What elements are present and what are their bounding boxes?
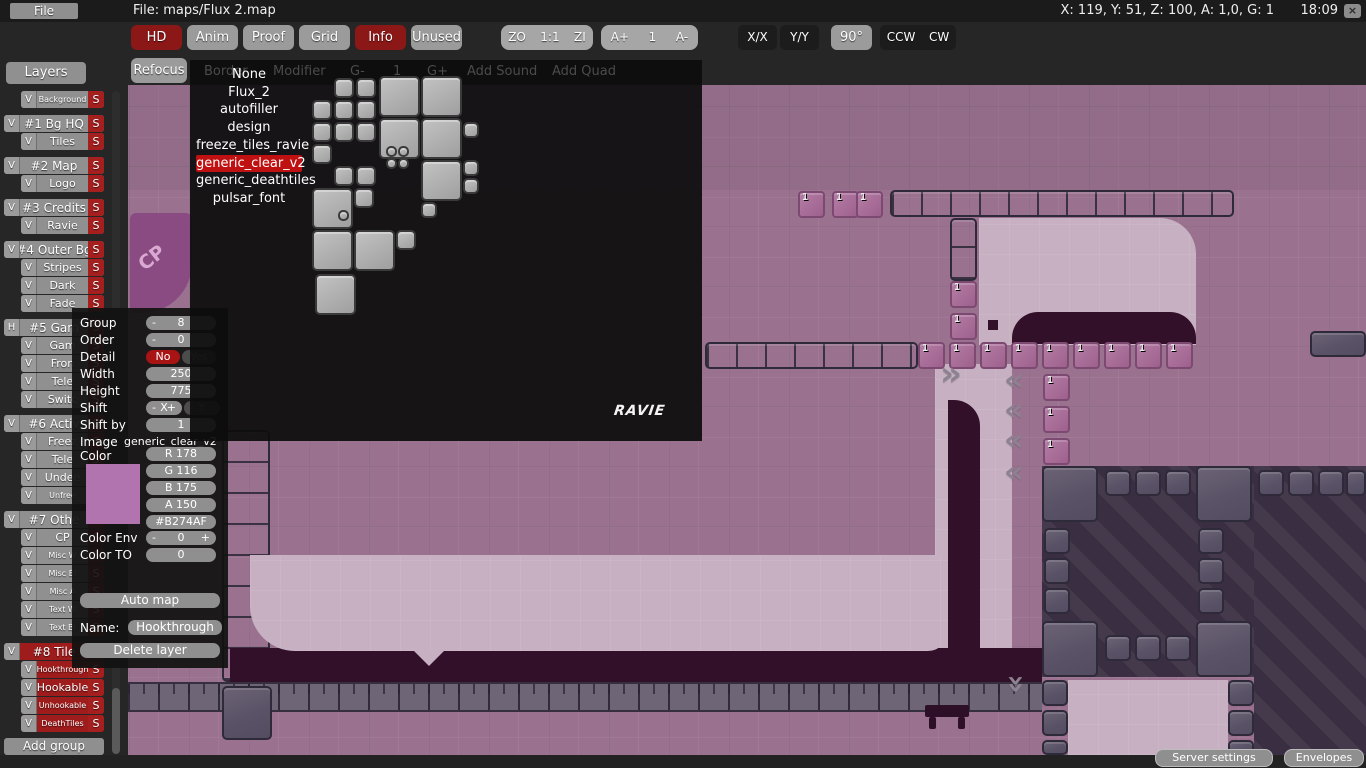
preview-tile bbox=[421, 202, 437, 218]
group-label: Group bbox=[80, 315, 117, 331]
order-label: Order bbox=[80, 332, 114, 348]
tile-number: 1 bbox=[1108, 343, 1114, 354]
tile-number-badge: 1 bbox=[856, 191, 883, 218]
layers-scrollbar-handle[interactable] bbox=[112, 688, 120, 754]
visibility-toggle-icon[interactable]: V bbox=[21, 217, 37, 234]
map-shape bbox=[1165, 635, 1191, 661]
image-item-pulsar_font[interactable]: pulsar_font bbox=[196, 190, 302, 207]
add-group-button[interactable]: Add group bbox=[4, 738, 104, 755]
detail-no-button[interactable]: No bbox=[146, 350, 180, 364]
map-shape bbox=[925, 705, 969, 717]
map-shape bbox=[890, 190, 1234, 217]
visibility-toggle-icon[interactable]: V bbox=[21, 565, 37, 582]
solo-button[interactable]: S bbox=[88, 241, 104, 258]
ravie-watermark: RAVIE bbox=[613, 403, 667, 419]
image-item-none[interactable]: None bbox=[196, 66, 302, 83]
color-env-stepper[interactable]: - 0 + bbox=[146, 531, 216, 545]
server-settings-button[interactable]: Server settings bbox=[1155, 749, 1273, 767]
map-shape bbox=[1254, 466, 1366, 759]
map-shape bbox=[958, 717, 965, 729]
cp-label: CP bbox=[134, 241, 170, 275]
image-item-generic_clear_v2[interactable]: generic_clear_v2 bbox=[196, 155, 302, 172]
layers-panel-header[interactable]: Layers bbox=[6, 62, 86, 84]
minus-icon[interactable]: - bbox=[152, 316, 156, 330]
preview-tile bbox=[386, 158, 397, 169]
visibility-toggle-icon[interactable]: V bbox=[4, 115, 20, 132]
tile-number-badge: 1 bbox=[1042, 342, 1069, 369]
map-shape bbox=[1012, 312, 1196, 344]
map-shape bbox=[1042, 740, 1068, 755]
obscured-add-sound-button: Add Sound bbox=[467, 64, 537, 79]
map-editor-root: CP 11111111111111111 »««««» Server setti… bbox=[0, 0, 1366, 768]
color-label: Color bbox=[80, 448, 111, 464]
rotate-90-button[interactable]: 90° bbox=[831, 25, 872, 50]
preview-tile bbox=[421, 118, 462, 159]
visibility-toggle-icon[interactable]: V bbox=[21, 259, 37, 276]
map-shape bbox=[250, 555, 948, 651]
layer-label: Background bbox=[37, 91, 88, 108]
delete-layer-button[interactable]: Delete layer bbox=[80, 643, 220, 658]
map-shape bbox=[950, 218, 977, 281]
toolbar-row-1: HDAnimProofGridInfoUnused ZO1:1ZI A+1A- … bbox=[131, 24, 956, 50]
image-item-freeze_tiles_ravie[interactable]: freeze_tiles_ravie bbox=[196, 137, 302, 154]
layer-label: #3 Credits bbox=[20, 199, 88, 216]
flip-yy-button[interactable]: Y/Y bbox=[780, 25, 819, 50]
coordinate-status: X: 119, Y: 51, Z: 100, A: 1,0, G: 1 bbox=[1061, 0, 1275, 22]
flip-xx-button[interactable]: X/X bbox=[738, 25, 777, 50]
tile-number-badge: 1 bbox=[1043, 374, 1070, 401]
toolbar-unused-button[interactable]: Unused bbox=[411, 25, 462, 50]
visibility-toggle-icon[interactable]: V bbox=[21, 277, 37, 294]
preview-tile bbox=[398, 146, 409, 157]
tile-number: 1 bbox=[1077, 343, 1083, 354]
map-shape bbox=[1165, 470, 1191, 496]
toolbar-grid-button[interactable]: Grid bbox=[299, 25, 350, 50]
visibility-toggle-icon[interactable]: V bbox=[21, 583, 37, 600]
tile-number-badge: 1 bbox=[980, 342, 1007, 369]
map-shape bbox=[222, 686, 272, 740]
tile-number-badge: 1 bbox=[1166, 342, 1193, 369]
map-shape bbox=[948, 400, 980, 648]
color-to-field[interactable]: 0 bbox=[146, 548, 216, 562]
visibility-toggle-icon[interactable]: V bbox=[21, 529, 37, 546]
layer-label: Ravie bbox=[37, 217, 88, 234]
map-shape bbox=[1310, 331, 1366, 357]
tile-number: 1 bbox=[984, 343, 990, 354]
map-shape bbox=[1044, 558, 1070, 584]
map-shape bbox=[1044, 528, 1070, 554]
map-shape bbox=[929, 717, 936, 729]
color-hex-field[interactable]: #B274AF bbox=[146, 515, 216, 529]
visibility-toggle-icon[interactable]: V bbox=[4, 643, 20, 660]
layer-row-unhookable[interactable]: VUnhookableS bbox=[21, 697, 104, 714]
tile-number-badge: 1 bbox=[1073, 342, 1100, 369]
preview-tile bbox=[356, 122, 376, 142]
visibility-toggle-icon[interactable]: V bbox=[21, 619, 37, 636]
map-shape bbox=[1044, 588, 1070, 614]
top-menu-bar: File File: maps/Flux 2.map X: 119, Y: 51… bbox=[0, 0, 1366, 22]
file-menu-button[interactable]: File bbox=[10, 3, 78, 19]
tile-number: 1 bbox=[1015, 343, 1021, 354]
map-shape bbox=[1198, 528, 1224, 554]
layer-label: Logo bbox=[37, 175, 88, 192]
layer-label: Stripes bbox=[37, 259, 88, 276]
visibility-toggle-icon[interactable]: V bbox=[21, 295, 37, 312]
tile-number-badge: 1 bbox=[950, 313, 977, 340]
visibility-toggle-icon[interactable]: V bbox=[4, 511, 20, 528]
tile-number-badge: 1 bbox=[950, 281, 977, 308]
preview-tile bbox=[463, 178, 479, 194]
map-shape bbox=[1228, 710, 1254, 736]
map-shape bbox=[1042, 680, 1068, 706]
map-shape bbox=[1198, 588, 1224, 614]
preview-tile bbox=[334, 100, 354, 120]
layer-label: #1 Bg HQ bbox=[20, 115, 88, 132]
tile-number-badge: 1 bbox=[798, 191, 825, 218]
layer-label: #2 Map bbox=[20, 157, 88, 174]
image-item-flux_2[interactable]: Flux_2 bbox=[196, 84, 302, 101]
anim-1[interactable]: 1 bbox=[649, 30, 657, 44]
rotate-cw[interactable]: CW bbox=[929, 30, 949, 44]
visibility-toggle-icon[interactable]: V bbox=[21, 391, 37, 408]
tile-number: 1 bbox=[1047, 407, 1053, 418]
map-shape bbox=[988, 320, 998, 330]
layer-row--4-outer-bg[interactable]: V#4 Outer BgS bbox=[4, 241, 104, 258]
visibility-toggle-icon[interactable]: V bbox=[21, 547, 37, 564]
tile-number-badge: 1 bbox=[1104, 342, 1131, 369]
visibility-toggle-icon[interactable]: V bbox=[4, 157, 20, 174]
preview-tile bbox=[312, 100, 332, 120]
image-item-autofiller[interactable]: autofiller bbox=[196, 101, 302, 118]
toolbar-anim-button[interactable]: Anim bbox=[187, 25, 238, 50]
preview-tile bbox=[334, 166, 354, 186]
color-env-value: 0 bbox=[178, 531, 185, 544]
visibility-toggle-icon[interactable]: V bbox=[21, 679, 37, 696]
preview-tile bbox=[354, 230, 395, 271]
layer-label: Unhookable bbox=[37, 697, 88, 714]
visibility-toggle-icon[interactable]: V bbox=[21, 433, 37, 450]
preview-tile bbox=[334, 122, 354, 142]
layer-label: Tiles bbox=[37, 133, 88, 150]
map-shape bbox=[1288, 470, 1314, 496]
map-shape bbox=[705, 342, 918, 369]
visibility-toggle-icon[interactable]: V bbox=[21, 487, 37, 504]
map-shape bbox=[1198, 558, 1224, 584]
auto-map-button[interactable]: Auto map bbox=[80, 593, 220, 608]
chevron-left-icon: « bbox=[1004, 460, 1023, 486]
tile-number: 1 bbox=[954, 282, 960, 293]
solo-button[interactable]: S bbox=[88, 133, 104, 150]
visibility-toggle-icon[interactable]: V bbox=[4, 415, 20, 432]
preview-tile bbox=[396, 230, 416, 250]
solo-button[interactable]: S bbox=[88, 217, 104, 234]
color-r-field[interactable]: R 178 bbox=[146, 447, 216, 461]
tile-number-badge: 1 bbox=[832, 191, 859, 218]
rotate-ccw[interactable]: CCW bbox=[887, 30, 916, 44]
preview-tile bbox=[421, 160, 462, 201]
layer-label: DeathTiles bbox=[37, 715, 88, 732]
shift-x-stepper[interactable]: - X + bbox=[146, 401, 182, 415]
chevron-down-icon: » bbox=[1003, 674, 1029, 693]
tile-number: 1 bbox=[1139, 343, 1145, 354]
obscured-add-quad-button: Add Quad bbox=[552, 64, 616, 79]
preview-tile bbox=[356, 78, 376, 98]
visibility-toggle-icon[interactable]: V bbox=[21, 337, 37, 354]
map-file-title: File: maps/Flux 2.map bbox=[133, 0, 276, 22]
tile-number: 1 bbox=[922, 343, 928, 354]
map-shape bbox=[1105, 635, 1131, 661]
layer-row-background[interactable]: VBackgroundS bbox=[21, 91, 104, 108]
chevron-left-icon: « bbox=[1004, 368, 1023, 394]
visibility-toggle-icon[interactable]: V bbox=[21, 133, 37, 150]
toolbar-hd-button[interactable]: HD bbox=[131, 25, 182, 50]
name-label: Name: bbox=[80, 620, 119, 636]
layer-row--2-map[interactable]: V#2 MapS bbox=[4, 157, 104, 174]
visibility-toggle-icon[interactable]: V bbox=[4, 199, 20, 216]
visibility-toggle-icon[interactable]: V bbox=[21, 451, 37, 468]
chevron-left-icon: « bbox=[1004, 428, 1023, 454]
zoom-group: ZO1:1ZI bbox=[501, 25, 593, 50]
map-shape bbox=[1042, 466, 1098, 522]
tile-number-badge: 1 bbox=[1135, 342, 1162, 369]
map-shape bbox=[1346, 470, 1366, 496]
platform-notch bbox=[413, 650, 445, 666]
preview-tile bbox=[354, 188, 374, 208]
preview-tile bbox=[312, 188, 353, 229]
plus-icon[interactable]: + bbox=[167, 401, 176, 415]
layer-row-tiles[interactable]: VTilesS bbox=[21, 133, 104, 150]
close-icon[interactable]: × bbox=[1344, 4, 1361, 18]
preview-tile bbox=[463, 160, 479, 176]
map-shape bbox=[1042, 710, 1068, 736]
envelopes-button[interactable]: Envelopes bbox=[1284, 749, 1364, 767]
preview-tile bbox=[356, 166, 376, 186]
color-to-label: Color TO bbox=[80, 547, 132, 563]
layer-label: #4 Outer Bg bbox=[20, 241, 88, 258]
solo-button[interactable]: S bbox=[88, 157, 104, 174]
plus-icon[interactable]: + bbox=[201, 531, 210, 545]
tile-number: 1 bbox=[1046, 343, 1052, 354]
map-shape bbox=[1196, 466, 1252, 522]
map-shape bbox=[1258, 470, 1284, 496]
preview-tile bbox=[312, 122, 332, 142]
solo-button[interactable]: S bbox=[88, 199, 104, 216]
visibility-toggle-icon[interactable]: V bbox=[4, 241, 20, 258]
zoom-11[interactable]: 1:1 bbox=[540, 30, 559, 44]
visibility-toggle-icon[interactable]: V bbox=[21, 373, 37, 390]
minus-icon[interactable]: - bbox=[152, 531, 156, 545]
rotation-group: CCWCW bbox=[880, 25, 956, 50]
image-item-generic_deathtiles[interactable]: generic_deathtiles bbox=[196, 172, 302, 189]
minus-icon[interactable]: - bbox=[152, 401, 156, 415]
flip-group: X/XY/Y bbox=[738, 25, 819, 50]
tile-number: 1 bbox=[860, 192, 866, 203]
zoom-zi[interactable]: ZI bbox=[574, 30, 586, 44]
tile-number: 1 bbox=[954, 314, 960, 325]
map-shape bbox=[1196, 621, 1252, 677]
map-shape bbox=[1135, 635, 1161, 661]
minus-icon[interactable]: - bbox=[152, 333, 156, 347]
group-value: 8 bbox=[178, 316, 185, 329]
shift-label: Shift bbox=[80, 400, 107, 416]
tile-number: 1 bbox=[1047, 375, 1053, 386]
preview-tile bbox=[334, 78, 354, 98]
chevron-left-icon: « bbox=[1004, 398, 1023, 424]
map-shape bbox=[1105, 470, 1131, 496]
tile-number: 1 bbox=[802, 192, 808, 203]
visibility-toggle-icon[interactable]: V bbox=[21, 175, 37, 192]
visibility-toggle-icon[interactable]: V bbox=[21, 661, 37, 678]
refocus-button[interactable]: Refocus bbox=[131, 58, 187, 83]
solo-button[interactable]: S bbox=[88, 91, 104, 108]
chevron-right-icon: » bbox=[940, 361, 962, 387]
layer-row-logo[interactable]: VLogoS bbox=[21, 175, 104, 192]
obscured-g--button: G- bbox=[350, 64, 365, 79]
layer-row-dark[interactable]: VDarkS bbox=[21, 277, 104, 294]
toolbar-proof-button[interactable]: Proof bbox=[243, 25, 294, 50]
preview-tile bbox=[463, 122, 479, 138]
layer-name-field[interactable]: Hookthrough bbox=[128, 620, 222, 635]
layer-row-ravie[interactable]: VRavieS bbox=[21, 217, 104, 234]
preview-tile bbox=[312, 230, 353, 271]
visibility-toggle-icon[interactable]: V bbox=[21, 355, 37, 372]
visibility-toggle-icon[interactable]: V bbox=[21, 601, 37, 618]
detail-label: Detail bbox=[80, 349, 115, 365]
solo-button[interactable]: S bbox=[88, 697, 104, 714]
preview-tile bbox=[312, 144, 332, 164]
color-g-field[interactable]: G 116 bbox=[146, 464, 216, 478]
anim-speed-group: A+1A- bbox=[601, 25, 698, 50]
preview-tile bbox=[421, 76, 462, 117]
map-shape bbox=[1135, 470, 1161, 496]
color-swatch[interactable] bbox=[86, 464, 140, 524]
solo-button[interactable]: S bbox=[88, 175, 104, 192]
clock: 18:09 bbox=[1301, 0, 1338, 22]
map-shape bbox=[1228, 680, 1254, 706]
map-shape bbox=[230, 648, 1042, 684]
layer-label: Hookable bbox=[37, 679, 88, 696]
tile-number-badge: 1 bbox=[1043, 438, 1070, 465]
preview-tile bbox=[315, 274, 356, 315]
layer-row--3-credits[interactable]: V#3 CreditsS bbox=[4, 199, 104, 216]
solo-button[interactable]: S bbox=[88, 277, 104, 294]
tile-number: 1 bbox=[836, 192, 842, 203]
preview-tile bbox=[379, 76, 420, 117]
visibility-toggle-icon[interactable]: V bbox=[21, 469, 37, 486]
solo-button[interactable]: S bbox=[88, 115, 104, 132]
width-label: Width bbox=[80, 366, 115, 382]
solo-button[interactable]: S bbox=[88, 259, 104, 276]
map-shape bbox=[1042, 621, 1098, 677]
color-env-label: Color Env bbox=[80, 530, 137, 546]
layer-label: Dark bbox=[37, 277, 88, 294]
toolbar-toggles: HDAnimProofGridInfoUnused bbox=[131, 25, 467, 50]
anim-a[interactable]: A+ bbox=[611, 30, 629, 44]
tile-number-badge: 1 bbox=[1043, 406, 1070, 433]
tile-number: 1 bbox=[1047, 439, 1053, 450]
tile-number: 1 bbox=[953, 343, 959, 354]
preview-tile bbox=[386, 146, 397, 157]
height-label: Height bbox=[80, 383, 120, 399]
visibility-toggle-icon[interactable]: V bbox=[21, 91, 37, 108]
shiftby-label: Shift by bbox=[80, 417, 126, 433]
cp-decoration: CP bbox=[130, 213, 192, 313]
layer-row--1-bg-hq[interactable]: V#1 Bg HQS bbox=[4, 115, 104, 132]
preview-tile bbox=[356, 100, 376, 120]
zoom-zo[interactable]: ZO bbox=[508, 30, 526, 44]
visibility-toggle-icon[interactable]: V bbox=[21, 715, 37, 732]
toolbar-info-button[interactable]: Info bbox=[355, 25, 406, 50]
solo-button[interactable]: S bbox=[88, 715, 104, 732]
visibility-toggle-icon[interactable]: H bbox=[4, 319, 20, 336]
tile-number: 1 bbox=[1170, 343, 1176, 354]
map-shape bbox=[1068, 680, 1228, 755]
layer-row-deathtiles[interactable]: VDeathTilesS bbox=[21, 715, 104, 732]
layer-row-hookable[interactable]: VHookableS bbox=[21, 679, 104, 696]
color-b-field[interactable]: B 175 bbox=[146, 481, 216, 495]
image-item-design[interactable]: design bbox=[196, 119, 302, 136]
preview-tile bbox=[398, 158, 409, 169]
solo-button[interactable]: S bbox=[88, 679, 104, 696]
color-a-field[interactable]: A 150 bbox=[146, 498, 216, 512]
preview-tile bbox=[338, 210, 349, 221]
order-value: 0 bbox=[178, 333, 185, 346]
layer-row-stripes[interactable]: VStripesS bbox=[21, 259, 104, 276]
image-select-popup: BorderModifierG-1G+Add SoundAdd Quad Non… bbox=[190, 60, 702, 441]
anim-a[interactable]: A- bbox=[676, 30, 688, 44]
visibility-toggle-icon[interactable]: V bbox=[21, 697, 37, 714]
map-shape bbox=[1318, 470, 1344, 496]
